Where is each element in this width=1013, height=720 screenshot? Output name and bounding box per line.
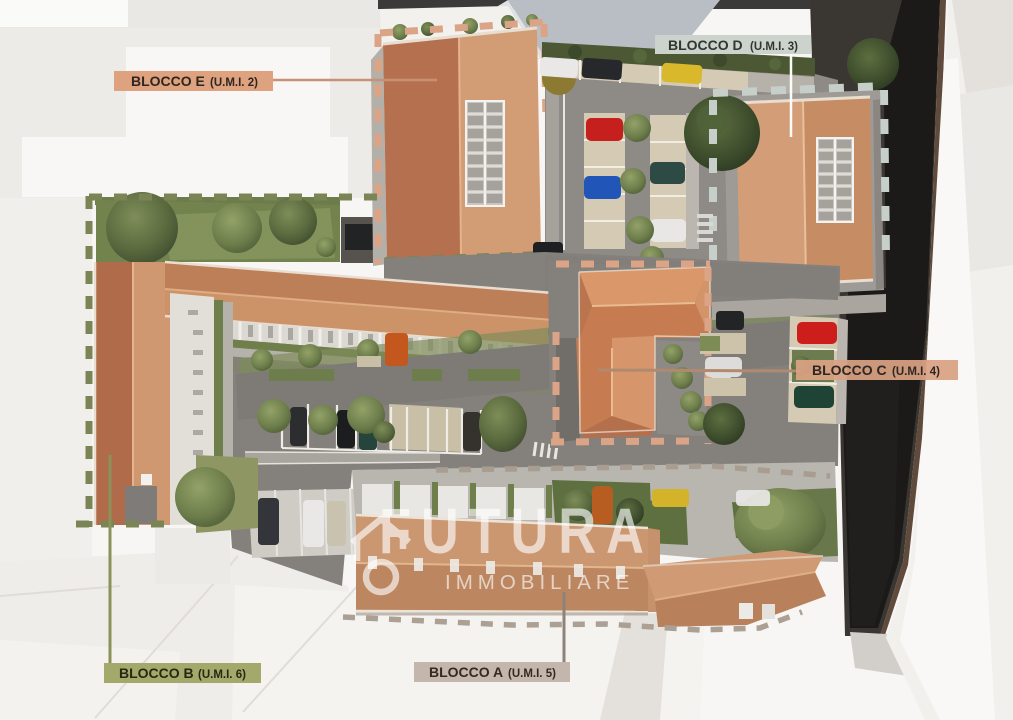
svg-text:(U.M.I. 3): (U.M.I. 3) (750, 41, 798, 53)
svg-text:IMMOBILIARE: IMMOBILIARE (445, 571, 634, 594)
svg-text:FUTURA: FUTURA (379, 496, 654, 567)
svg-text:(U.M.I. 4): (U.M.I. 4) (892, 366, 940, 378)
svg-text:BLOCCO D: BLOCCO D (668, 37, 743, 53)
svg-text:(U.M.I. 5): (U.M.I. 5) (508, 668, 556, 680)
svg-text:BLOCCO E: BLOCCO E (131, 73, 205, 89)
svg-text:(U.M.I. 2): (U.M.I. 2) (210, 77, 258, 89)
svg-text:BLOCCO A: BLOCCO A (429, 664, 503, 680)
svg-text:BLOCCO C: BLOCCO C (812, 362, 887, 378)
svg-text:(U.M.I. 6): (U.M.I. 6) (198, 669, 246, 681)
svg-text:BLOCCO B: BLOCCO B (119, 665, 194, 681)
